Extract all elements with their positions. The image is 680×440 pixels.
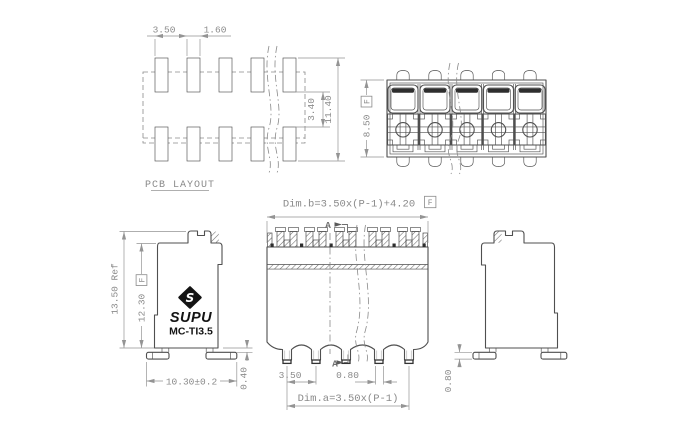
datum-flag-front-view: F [428,199,433,208]
front-view-body [267,247,428,360]
side-right-body [482,231,558,348]
dim-label-standoff: 0.40 [239,367,250,390]
top-view-dim-depth: 8.50 F [360,80,384,157]
datum-flag-side-left: F [139,278,148,283]
top-view: 8.50 F [360,63,546,174]
dim-label-body-height: 12.30 [137,293,148,322]
pcb-break-line [267,46,279,173]
side-right-dim-foot: 0.80 [443,344,472,392]
model-number: MC-TI3.5 [169,326,213,338]
front-view: A A Dim.b=3.50x(P-1)+4.20 F [267,196,436,410]
dim-label-foot-thickness: 0.80 [443,369,454,392]
pcb-layout-view: 3.50 1.60 3.40 11.40 PCB LAYOUT [143,25,345,192]
dim-label-footprint-width: 10.30±0.2 [166,376,218,387]
dim-label-depth: 8.50 [362,114,373,137]
dim-label-row-gap: 3.40 [306,98,317,121]
side-right-feet [473,348,567,359]
side-left-dim-body-height: 12.30 F [136,244,157,349]
side-left-dim-standoff: 0.40 [223,340,253,390]
drawing-canvas: 3.50 1.60 3.40 11.40 PCB LAYOUT [0,0,680,440]
section-label-top: A [325,220,331,231]
side-left-dim-footprint: 10.30±0.2 [147,362,237,387]
side-right-hatch [494,232,501,243]
pcb-dim-pitch: 3.50 1.60 [147,25,231,57]
dim-label-pin-pitch: 3.50 [279,370,302,381]
side-view-left: S SUPU MC-TI3.5 13.50 Ref 12.30 F [110,231,253,390]
front-view-dim-pins: 3.50 0.80 Dim.a=3.50x(P-1) [279,366,409,410]
technical-drawing-sheet: 3.50 1.60 3.40 11.40 PCB LAYOUT [0,0,680,440]
pcb-pads [155,58,296,161]
side-view-right: 0.80 [443,231,567,392]
dim-label-a-formula: Dim.a=3.50x(P-1) [298,393,399,405]
front-view-seam-band [267,265,428,270]
dim-label-pad-width: 1.60 [204,25,227,36]
side-left-hatch [212,232,219,243]
dim-label-overall-height: 11.40 [323,95,334,124]
datum-flag-top-view: F [364,99,373,104]
pcb-layout-title: PCB LAYOUT [145,180,215,191]
dim-label-pin-width: 0.80 [336,370,359,381]
dim-label-b-formula: Dim.b=3.50x(P-1)+4.20 [283,199,415,211]
dim-label-height-ref: 13.50 Ref [110,263,121,315]
dim-label-pitch: 3.50 [153,25,176,36]
side-left-feet [147,348,237,359]
supu-logo-letter: S [186,291,195,305]
brand-name: SUPU [170,310,212,326]
